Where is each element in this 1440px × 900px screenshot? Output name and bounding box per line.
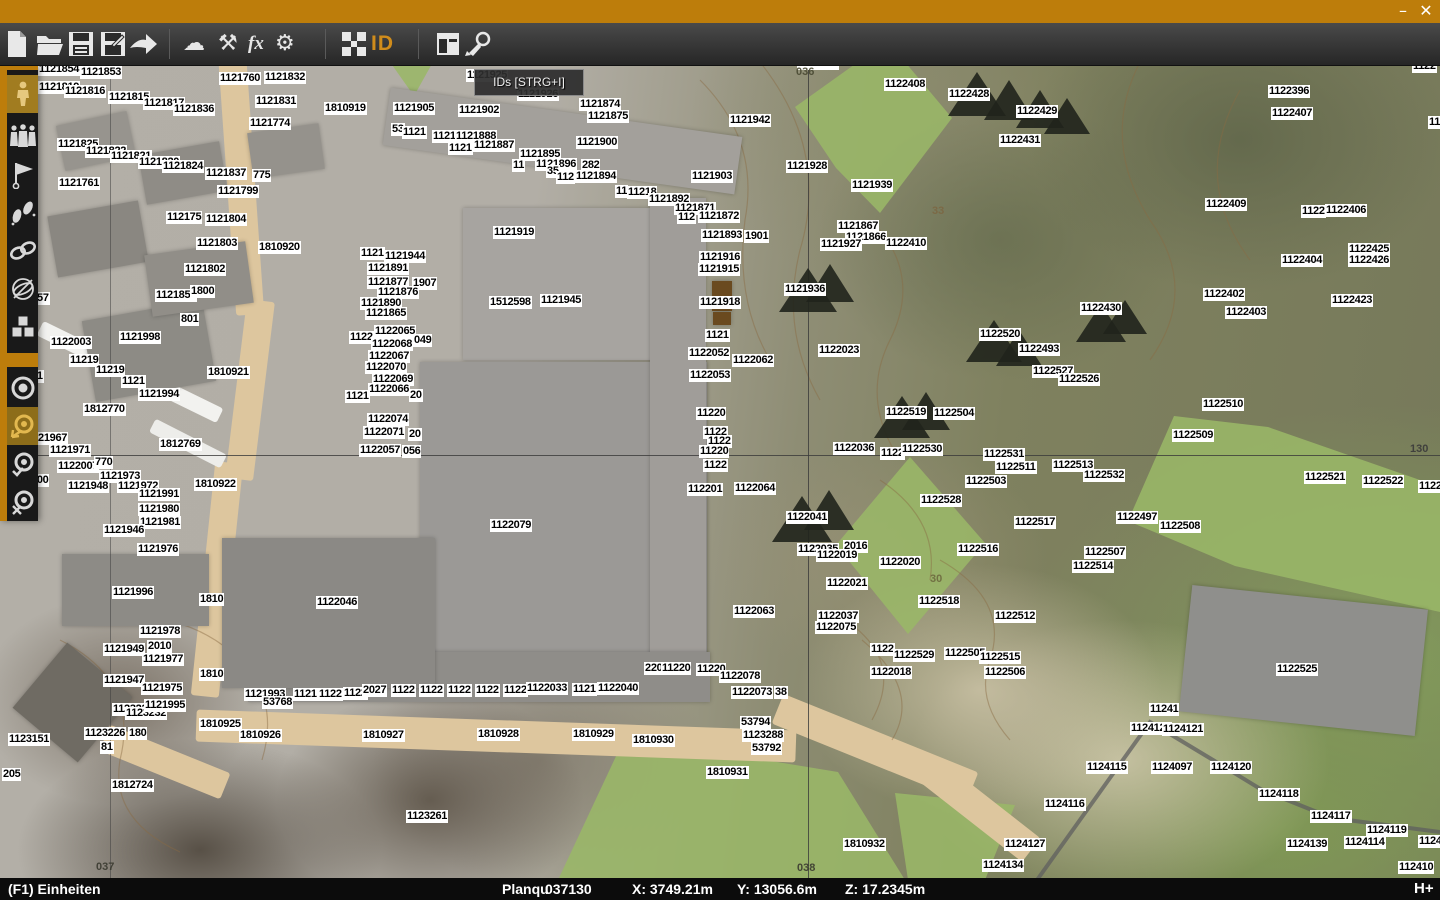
object-id-label[interactable]: 1124115 <box>1086 761 1128 774</box>
save-icon[interactable] <box>68 27 94 61</box>
new-file-icon[interactable] <box>5 27 29 61</box>
object-id-label[interactable]: 1122529 <box>893 649 935 662</box>
title-bar: – ✕ <box>0 0 1440 23</box>
object-id-label[interactable]: 1122 <box>870 643 895 656</box>
object-id-label[interactable]: 1121942 <box>729 114 771 127</box>
object-id-label[interactable]: 1124117 <box>1310 810 1352 823</box>
object-id-label[interactable]: 1121996 <box>112 586 154 599</box>
object-id-label[interactable]: 11241 <box>1149 703 1179 716</box>
object-id-label[interactable]: 1122521 <box>1304 471 1346 484</box>
object-id-label[interactable]: 775 <box>252 169 271 182</box>
object-id-label[interactable]: 1121918 <box>699 296 741 309</box>
object-id-label[interactable]: 1122074 <box>367 413 409 426</box>
object-id-label[interactable]: 1122036 <box>833 442 875 455</box>
object-id-label[interactable]: 1122423 <box>1331 294 1373 307</box>
object-id-label[interactable]: 1122403 <box>1225 306 1267 319</box>
object-id-label[interactable]: 2027 <box>362 684 387 697</box>
object-id-label[interactable]: 1122 <box>703 459 728 472</box>
open-file-icon[interactable] <box>36 27 64 61</box>
object-id-label[interactable]: 112 <box>556 171 575 184</box>
object-id-label[interactable]: 1121853 <box>80 66 122 79</box>
object-id-label[interactable]: 1122046 <box>316 596 358 609</box>
object-id-label[interactable]: 1810931 <box>706 766 749 779</box>
object-id-label[interactable]: 1122531 <box>983 448 1025 461</box>
status-planquad-value: 037130 <box>545 878 592 900</box>
object-id-label[interactable]: 1122021 <box>826 577 868 590</box>
object-id-label[interactable]: 1124139 <box>1286 838 1328 851</box>
close-button[interactable]: ✕ <box>1415 1 1437 21</box>
object-id-label[interactable]: 1812724 <box>111 779 154 792</box>
object-id-label[interactable]: 1122071 <box>363 426 405 439</box>
sprayer-icon[interactable] <box>464 27 492 61</box>
object-id-label[interactable]: 1122512 <box>994 610 1036 623</box>
object-id-label[interactable]: 1121875 <box>587 110 629 123</box>
object-id-label[interactable]: 1121761 <box>58 177 100 190</box>
object-id-label[interactable]: 1122430 <box>1080 302 1122 315</box>
status-bar: (F1) Einheiten Planqu 037130 X: 3749.21m… <box>0 878 1440 900</box>
sidebar-accent-edge <box>0 70 7 521</box>
object-id-label[interactable]: 1121980 <box>138 503 180 516</box>
object-id-label[interactable]: 1122517 <box>1014 516 1056 529</box>
object-id-label[interactable]: 1121927 <box>820 238 862 251</box>
object-id-label[interactable]: 1121995 <box>144 699 186 712</box>
toolbar-separator <box>325 29 326 59</box>
gear-icon[interactable]: ⚙ <box>275 27 295 61</box>
object-id-label[interactable]: 1122506 <box>984 666 1026 679</box>
main-toolbar: ☁ ⚒ fx ⚙ ID <box>0 23 1440 66</box>
target-arrow-icon <box>10 413 36 439</box>
sidebar-item-center-delete[interactable] <box>7 483 38 521</box>
object-id-label[interactable]: 1121831 <box>255 95 297 108</box>
object-id-label[interactable]: 056 <box>402 445 421 458</box>
edit-mode-sidebar <box>0 65 38 521</box>
building <box>1179 585 1428 736</box>
object-id-label[interactable]: 1121998 <box>119 331 161 344</box>
object-id-label[interactable]: 11 <box>1428 116 1440 129</box>
object-id-label[interactable]: 770 <box>94 456 113 469</box>
object-id-label[interactable]: 1122023 <box>818 344 860 357</box>
object-id-label[interactable]: 1121802 <box>184 263 226 276</box>
object-id-label[interactable]: 1122 <box>475 684 500 697</box>
object-id-label[interactable]: 1124116 <box>1044 798 1086 811</box>
object-id-label[interactable]: 1122 <box>349 331 374 344</box>
object-id-label[interactable]: 801 <box>180 313 199 326</box>
object-id-label[interactable]: 1122525 <box>1276 663 1318 676</box>
group-icon <box>9 124 37 150</box>
object-id-label[interactable]: 112410 <box>1398 861 1434 874</box>
object-id-label[interactable]: 1124121 <box>1162 723 1204 736</box>
tree-marker <box>804 490 854 530</box>
object-id-label[interactable]: 1121991 <box>138 488 180 501</box>
grid-coordinate-label: 038 <box>797 862 815 874</box>
status-planquad-label: Planqu <box>502 878 549 900</box>
toolbar-separator <box>169 29 170 59</box>
chain-icon <box>9 239 37 263</box>
bullseye-icon <box>10 375 36 401</box>
object-id-label[interactable]: 1121774 <box>249 117 291 130</box>
export-icon[interactable] <box>128 27 158 61</box>
object-id-label[interactable]: 1124127 <box>1004 838 1046 851</box>
tools-icon[interactable]: ⚒ <box>218 27 238 61</box>
object-id-label[interactable]: 1810926 <box>239 729 282 742</box>
object-id-label[interactable]: 20 <box>408 428 422 441</box>
grid-line-vertical <box>808 65 809 878</box>
object-id-label[interactable]: 1812770 <box>83 403 126 416</box>
object-id-label[interactable]: 1121872 <box>698 210 740 223</box>
object-id-label[interactable]: 049 <box>413 334 432 347</box>
object-id-label[interactable]: 1121887 <box>473 139 515 152</box>
object-id-label[interactable]: 1122407 <box>1271 107 1313 120</box>
object-id-label[interactable]: 1121 <box>572 683 597 696</box>
object-id-label[interactable]: 1121981 <box>139 516 181 529</box>
object-id-label[interactable]: 1122519 <box>885 406 927 419</box>
object-id-label[interactable]: 112201 <box>687 483 723 496</box>
object-id-label[interactable]: 1122003 <box>50 336 92 349</box>
object-id-label[interactable]: 1122532 <box>1083 469 1125 482</box>
grid-coordinate-label: 30 <box>930 573 942 585</box>
status-z-coordinate: Z: 17.2345m <box>845 878 925 900</box>
object-id-label[interactable]: 1810 <box>199 668 224 681</box>
object-id-label[interactable]: 180 <box>128 727 147 740</box>
fx-icon[interactable]: fx <box>248 27 264 61</box>
object-id-label[interactable]: 11220 <box>699 445 729 458</box>
object-id-label[interactable]: 1122429 <box>1016 105 1058 118</box>
object-id-label[interactable]: 1122510 <box>1202 398 1244 411</box>
object-id-label[interactable]: 1122033 <box>526 682 568 695</box>
object-id-label[interactable]: 1810928 <box>477 728 520 741</box>
object-id-label[interactable]: 1121902 <box>458 104 500 117</box>
object-id-label[interactable]: 1122396 <box>1268 85 1310 98</box>
object-id-label[interactable]: 11 <box>512 159 525 172</box>
map-canvas[interactable]: 1121854112185311218191121816112181511218… <box>0 0 1440 900</box>
object-id-label[interactable]: 1121975 <box>141 682 183 695</box>
object-id-label[interactable]: 1810921 <box>207 366 250 379</box>
grid-coordinate-label: 130 <box>1410 443 1428 455</box>
status-mode: (F1) Einheiten <box>8 878 101 900</box>
object-id-label[interactable]: 1810920 <box>258 241 301 254</box>
object-id-label[interactable]: 1121946 <box>103 524 145 537</box>
building <box>222 538 435 688</box>
object-id-label[interactable]: 1121893 <box>701 229 743 242</box>
sidebar-separator <box>0 353 38 367</box>
toolbar-separator <box>418 29 419 59</box>
object-id-label[interactable]: 1122 <box>419 684 444 697</box>
status-x-coordinate: X: 3749.21m <box>632 878 713 900</box>
object-id-label[interactable]: 1121905 <box>393 102 435 115</box>
object-id-label[interactable]: 1121 <box>705 329 730 342</box>
object-id-label[interactable]: 20 <box>409 389 423 402</box>
ids-toggle-button[interactable]: ID <box>371 27 394 61</box>
object-id-label[interactable]: 1122408 <box>884 78 926 91</box>
object-id-label[interactable]: 1122431 <box>999 134 1041 147</box>
object-id-label[interactable]: 1122078 <box>719 670 761 683</box>
object-id-label[interactable]: 1121971 <box>49 444 91 457</box>
object-id-label[interactable]: 1810925 <box>199 718 242 731</box>
object-id-label[interactable]: 1122064 <box>734 482 776 495</box>
object-id-label[interactable]: 1121803 <box>196 237 238 250</box>
object-id-label[interactable]: 53768 <box>262 696 293 709</box>
object-id-label[interactable]: 1123226 <box>84 727 126 740</box>
object-id-label[interactable]: 1121994 <box>138 388 180 401</box>
object-id-label[interactable]: 1122079 <box>490 519 532 532</box>
object-id-label[interactable]: 1122062 <box>732 354 774 367</box>
object-id-label[interactable]: 1122 <box>503 684 528 697</box>
object-id-label[interactable]: 1124097 <box>1151 761 1193 774</box>
object-id-label[interactable]: 1121891 <box>367 262 409 275</box>
object-id-label[interactable]: 1810932 <box>843 838 886 851</box>
object-id-label[interactable]: 1122514 <box>1072 560 1114 573</box>
object-id-label[interactable]: 1122019 <box>816 549 858 562</box>
object-id-label[interactable]: 57 <box>36 292 50 305</box>
object-id-label[interactable]: 1122526 <box>1058 373 1100 386</box>
road <box>225 299 275 481</box>
object-id-label[interactable]: 1121 <box>448 142 473 155</box>
object-id-label[interactable]: 205 <box>2 768 21 781</box>
panels-icon[interactable] <box>436 27 460 61</box>
person-icon <box>14 81 32 107</box>
object-id-label[interactable]: 1121799 <box>217 185 259 198</box>
object-id-label[interactable]: 1122 <box>391 684 416 697</box>
object-id-label[interactable]: 1121 <box>360 247 385 260</box>
grid-coordinate-label: 037 <box>96 861 114 873</box>
grid-coordinate-label: 036 <box>796 66 814 78</box>
object-id-label[interactable]: 1121936 <box>784 283 826 296</box>
object-id-label[interactable]: 1121945 <box>540 294 582 307</box>
object-id-label[interactable]: 1121 <box>402 126 427 139</box>
weather-icon[interactable]: ☁ <box>183 27 205 61</box>
sidebar-item-synchronize[interactable] <box>7 232 38 270</box>
object-id-label[interactable]: 1121949 <box>103 643 145 656</box>
object-id-label[interactable]: 1121 <box>121 375 146 388</box>
target-check-icon <box>10 451 36 477</box>
object-id-label[interactable]: 1124120 <box>1210 761 1252 774</box>
object-id-label[interactable]: 1512598 <box>489 296 532 309</box>
object-id-label[interactable]: 1121939 <box>851 179 893 192</box>
object-id-label[interactable]: 1121 <box>345 390 370 403</box>
object-id-label[interactable]: 1122516 <box>957 543 999 556</box>
object-id-label[interactable]: 1122406 <box>1325 204 1367 217</box>
object-id-label[interactable]: 1122075 <box>815 621 857 634</box>
object-id-label[interactable]: 1121816 <box>64 85 106 98</box>
object-id-label[interactable]: 1122063 <box>733 605 775 618</box>
object-id-label[interactable]: 1123288 <box>742 729 784 742</box>
object-id-label[interactable]: 1122057 <box>359 444 401 457</box>
minimize-button[interactable]: – <box>1392 1 1414 21</box>
object-id-label[interactable]: 1122 <box>1418 480 1440 493</box>
object-id-label[interactable]: 1122409 <box>1205 198 1247 211</box>
object-id-label[interactable]: 1121928 <box>786 160 828 173</box>
fit-view-icon[interactable] <box>342 27 366 61</box>
object-id-label[interactable]: 1121919 <box>493 226 535 239</box>
application-window: 1121854112185311218191121816112181511218… <box>0 0 1440 900</box>
object-id-label[interactable]: 1124118 <box>1258 788 1300 801</box>
object-id-label[interactable]: 1121903 <box>691 170 733 183</box>
object-id-label[interactable]: 1121900 <box>576 136 618 149</box>
object-id-label[interactable]: 1124 <box>1418 835 1440 848</box>
object-id-label[interactable]: 1122426 <box>1348 254 1390 267</box>
flag-icon <box>11 161 35 189</box>
object-id-label[interactable]: 1122404 <box>1281 254 1323 267</box>
object-id-label[interactable]: 1122040 <box>597 682 639 695</box>
building <box>47 200 148 277</box>
object-id-label[interactable]: 1123261 <box>406 810 448 823</box>
status-y-coordinate: Y: 13056.6m <box>737 878 817 900</box>
object-id-label[interactable]: 1121804 <box>205 213 247 226</box>
object-id-label[interactable]: 112175 <box>166 211 202 224</box>
object-id-label[interactable]: 11220 <box>696 407 726 420</box>
object-id-label[interactable]: 1121824 <box>162 160 204 173</box>
object-id-label[interactable]: 1122066 <box>368 383 410 396</box>
object-id-label[interactable]: 1124134 <box>982 859 1024 872</box>
globe-icon <box>10 276 36 302</box>
object-id-label[interactable]: 2010 <box>147 640 172 653</box>
object-id-label[interactable]: 1121947 <box>103 674 145 687</box>
object-id-label[interactable]: 1122504 <box>933 407 975 420</box>
status-compass-icon: H+ <box>1414 878 1434 900</box>
sidebar-item-modules[interactable] <box>7 308 38 346</box>
object-id-label[interactable]: 1122073 <box>731 686 773 699</box>
object-id-label[interactable]: 1122507 <box>1084 546 1126 559</box>
object-id-label[interactable]: 1122428 <box>948 88 990 101</box>
sidebar-item-units[interactable] <box>7 75 38 113</box>
object-id-label[interactable]: 1121915 <box>698 263 740 276</box>
object-id-label[interactable]: 1810930 <box>632 734 675 747</box>
object-id-label[interactable]: 1122518 <box>918 595 960 608</box>
object-id-label[interactable]: 1122522 <box>1362 475 1404 488</box>
sidebar-item-center-link[interactable] <box>7 407 38 445</box>
object-id-label[interactable]: 1121978 <box>139 625 181 638</box>
object-id-label[interactable]: 53794 <box>740 716 771 729</box>
sidebar-item-markers[interactable] <box>7 270 38 308</box>
object-id-label[interactable]: 1122508 <box>1159 520 1201 533</box>
object-id-label[interactable]: 1124114 <box>1344 836 1386 849</box>
object-id-label[interactable]: 1901 <box>744 230 769 243</box>
object-id-label[interactable]: 1122497 <box>1116 511 1158 524</box>
sidebar-item-center[interactable] <box>7 369 38 407</box>
object-id-label[interactable]: 1122053 <box>689 369 731 382</box>
object-id-label[interactable]: 1122402 <box>1203 288 1245 301</box>
object-id-label[interactable]: 1121865 <box>365 307 407 320</box>
grid-coordinate-label: 33 <box>932 205 944 217</box>
sidebar-item-center-check[interactable] <box>7 445 38 483</box>
object-id-label[interactable]: 1122530 <box>901 443 943 456</box>
object-id-label[interactable]: 1121976 <box>137 543 179 556</box>
sidebar-item-triggers[interactable] <box>7 156 38 194</box>
object-id-label[interactable]: 53792 <box>751 742 782 755</box>
object-id-label[interactable]: 1122515 <box>979 651 1021 664</box>
object-id-label[interactable]: 1122007 <box>57 460 99 473</box>
object-id-label[interactable]: 1810 <box>199 593 224 606</box>
object-id-label[interactable]: 112 <box>677 211 696 224</box>
object-id-label[interactable]: 1122528 <box>920 494 962 507</box>
object-id-label[interactable]: 1810922 <box>194 478 237 491</box>
ids-tooltip: IDs [STRG+I] <box>474 69 584 96</box>
object-id-label[interactable]: 1812769 <box>159 438 202 451</box>
object-id-label[interactable]: 38 <box>774 686 788 699</box>
object-id-label[interactable]: 1810919 <box>324 102 367 115</box>
object-id-label[interactable]: 81 <box>100 741 114 754</box>
object-id-label[interactable]: 1121837 <box>205 167 247 180</box>
object-id-label[interactable]: 1800 <box>190 285 215 298</box>
object-id-label[interactable]: 1122041 <box>786 511 828 524</box>
object-id-label[interactable]: 1121948 <box>67 480 109 493</box>
object-id-label[interactable]: 1122493 <box>1018 343 1060 356</box>
footprints-icon <box>10 200 36 226</box>
target-x-icon <box>10 489 36 515</box>
object-id-label[interactable]: 1122020 <box>879 556 921 569</box>
object-id-label[interactable]: 1121894 <box>575 170 617 183</box>
object-id-label[interactable]: 1122 <box>1301 205 1326 218</box>
cubes-icon <box>10 314 36 340</box>
object-id-label[interactable]: 1122511 <box>995 461 1037 474</box>
object-id-label[interactable]: 1121977 <box>142 653 184 666</box>
object-id-label[interactable]: 1122520 <box>979 328 1021 341</box>
object-id-label[interactable]: 1121836 <box>173 103 215 116</box>
object-id-label[interactable]: 1122 <box>318 688 343 701</box>
object-id-label[interactable]: 1122052 <box>688 347 730 360</box>
object-id-label[interactable]: 1121 <box>293 688 318 701</box>
save-as-icon[interactable] <box>100 27 126 61</box>
object-id-label[interactable]: 1122410 <box>885 237 927 250</box>
object-id-label[interactable]: 1122065 <box>374 325 416 338</box>
object-id-label[interactable]: 1121832 <box>264 71 306 84</box>
building <box>713 312 731 325</box>
object-id-label[interactable]: 1122503 <box>965 475 1007 488</box>
object-id-label[interactable]: 1810927 <box>362 729 405 742</box>
object-id-label[interactable]: 1123151 <box>8 733 50 746</box>
sidebar-item-waypoints[interactable] <box>7 194 38 232</box>
sidebar-item-groups[interactable] <box>7 118 38 156</box>
object-id-label[interactable]: 1810929 <box>572 728 615 741</box>
object-id-label[interactable]: 1122509 <box>1172 429 1214 442</box>
object-id-label[interactable]: 11220 <box>661 662 691 675</box>
object-id-label[interactable]: 1122018 <box>870 666 912 679</box>
object-id-label[interactable]: 1121760 <box>219 72 261 85</box>
object-id-label[interactable]: 1122 <box>447 684 472 697</box>
